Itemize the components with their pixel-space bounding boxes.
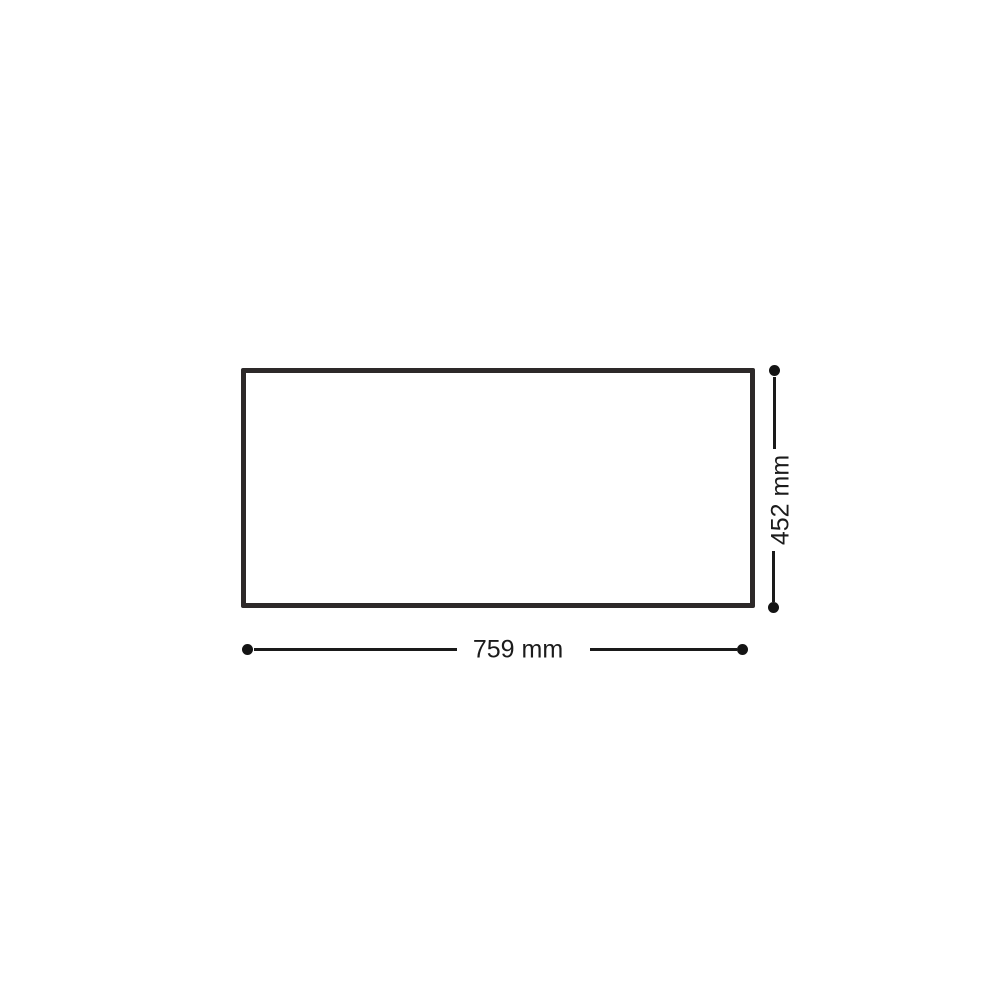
dimension-endpoint-dot-bottom bbox=[768, 602, 779, 613]
height-dimension-line-upper bbox=[773, 377, 776, 449]
dimension-endpoint-dot-right bbox=[737, 644, 748, 655]
dimension-endpoint-dot-top bbox=[769, 365, 780, 376]
width-dimension-line-left bbox=[254, 648, 457, 651]
width-dimension-line-right bbox=[590, 648, 737, 651]
height-dimension-line-lower bbox=[772, 551, 775, 602]
width-dimension-label: 759 mm bbox=[473, 638, 563, 663]
dimension-diagram: 452 mm 759 mm bbox=[0, 0, 1000, 1000]
panel-rectangle bbox=[241, 368, 755, 608]
height-dimension-label: 452 mm bbox=[769, 455, 794, 545]
dimension-endpoint-dot-left bbox=[242, 644, 253, 655]
